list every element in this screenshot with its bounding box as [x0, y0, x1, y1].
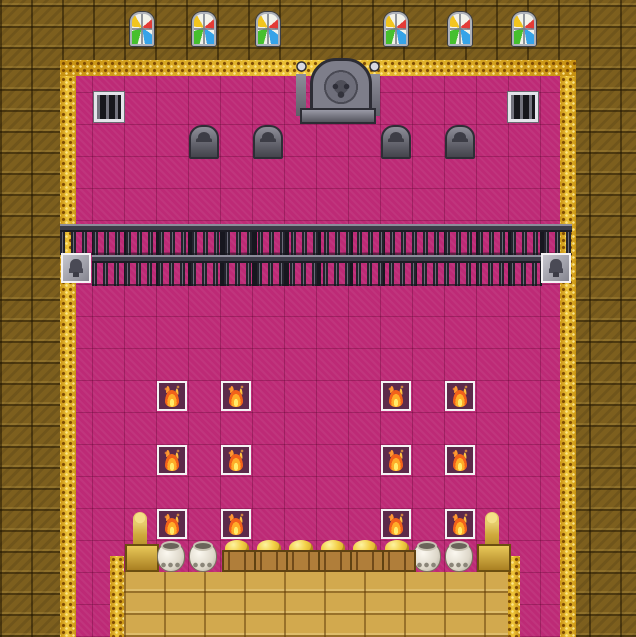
brazier-fire[interactable] — [221, 445, 251, 475]
barred-vent-window — [94, 92, 124, 122]
gold-crate[interactable] — [221, 540, 253, 572]
gold-lace-trim-left — [60, 76, 76, 637]
game-map — [0, 0, 636, 637]
ceramic-pot[interactable] — [445, 542, 473, 572]
gold-statue[interactable] — [125, 508, 155, 572]
crest-emblem[interactable] — [541, 253, 571, 283]
tombstone — [253, 125, 283, 159]
tombstone — [445, 125, 475, 159]
skull-throne — [296, 58, 380, 124]
brazier-fire[interactable] — [157, 445, 187, 475]
stained-glass-window — [448, 12, 472, 46]
gold-crate[interactable] — [253, 540, 285, 572]
brazier-fire[interactable] — [445, 381, 475, 411]
fence-rail-lower — [92, 255, 542, 286]
brazier-fire[interactable] — [445, 445, 475, 475]
ceramic-pot[interactable] — [189, 542, 217, 572]
ceramic-pot[interactable] — [157, 542, 185, 572]
gold-statue[interactable] — [477, 508, 507, 572]
stained-glass-window — [256, 12, 280, 46]
brazier-fire[interactable] — [221, 509, 251, 539]
ceramic-pot[interactable] — [413, 542, 441, 572]
gold-crate[interactable] — [381, 540, 413, 572]
brazier-fire[interactable] — [445, 509, 475, 539]
fence-rail-upper — [60, 224, 572, 255]
brazier-fire[interactable] — [157, 509, 187, 539]
stained-glass-window — [384, 12, 408, 46]
stained-glass-window — [512, 12, 536, 46]
brazier-fire[interactable] — [381, 509, 411, 539]
gold-brick-dais — [124, 572, 508, 637]
tombstone — [189, 125, 219, 159]
stained-glass-window — [130, 12, 154, 46]
gold-lace-trim-right — [560, 76, 576, 637]
barred-vent-window — [508, 92, 538, 122]
gold-lace-trim-dais-left — [110, 556, 124, 637]
crest-emblem[interactable] — [61, 253, 91, 283]
brazier-fire[interactable] — [157, 381, 187, 411]
brazier-fire[interactable] — [221, 381, 251, 411]
stained-glass-window — [192, 12, 216, 46]
gold-crate[interactable] — [285, 540, 317, 572]
tombstone — [381, 125, 411, 159]
brazier-fire[interactable] — [381, 445, 411, 475]
gold-crate[interactable] — [317, 540, 349, 572]
brazier-fire[interactable] — [381, 381, 411, 411]
gold-crate[interactable] — [349, 540, 381, 572]
